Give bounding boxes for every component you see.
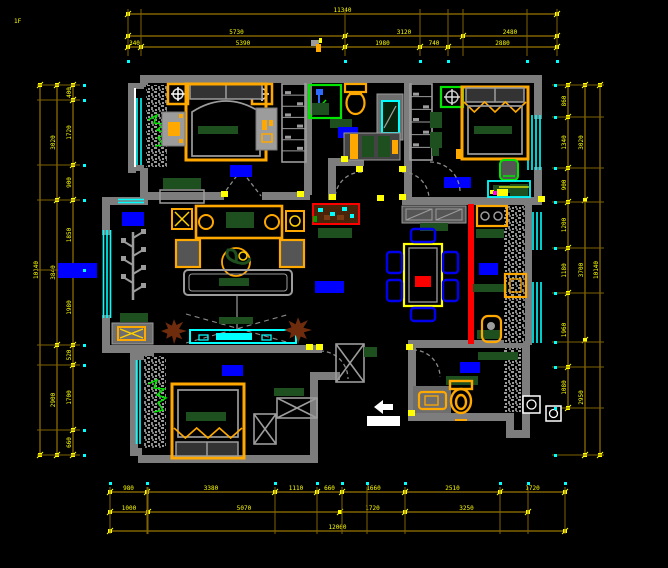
window-bedroom3-bay <box>137 360 141 444</box>
wall <box>310 375 318 463</box>
leaf <box>141 265 146 270</box>
window-kitchen-right-1 <box>533 212 541 250</box>
dimension-chain: 573031202480 <box>125 29 560 39</box>
sofa-cushion <box>226 212 254 228</box>
dim-label: 1340 <box>561 135 568 150</box>
wall-light-nub <box>221 191 228 197</box>
room-label <box>460 362 480 373</box>
dim-label: 12060 <box>328 524 346 531</box>
dim-label: 2880 <box>495 40 510 47</box>
wall <box>140 75 542 83</box>
leaf <box>141 247 146 252</box>
wardrobe-handle <box>285 113 291 116</box>
defpoint <box>83 269 86 272</box>
wardrobe-handle <box>413 143 419 146</box>
dimension-chain: 11340 <box>125 7 560 17</box>
bay-hatch-bedroom3 <box>144 356 166 448</box>
north-arrow-icon <box>374 400 393 414</box>
dimension-chain: 98033801110660166025101720 <box>107 485 568 495</box>
counter <box>476 229 504 238</box>
dim-label: 860 <box>561 95 568 106</box>
dimension-chain: 1000507017203250 <box>107 505 531 515</box>
armchair <box>280 240 304 267</box>
dim-label: 1720 <box>525 485 540 492</box>
dim-label: 3020 <box>578 135 585 150</box>
defpoint <box>554 407 557 410</box>
wardrobe-handle <box>423 105 429 108</box>
defpoint <box>554 366 557 369</box>
toilet-icon <box>345 84 366 114</box>
dim-label: 3250 <box>459 505 474 512</box>
room-label <box>479 263 498 275</box>
kitchen-divider <box>468 204 474 344</box>
defpoint <box>554 341 557 344</box>
room-label <box>444 177 471 188</box>
window-frame <box>134 88 136 167</box>
wall-light-nub <box>538 196 545 202</box>
wall-light-nub <box>399 166 406 172</box>
media-shelf <box>219 317 253 324</box>
bathroom2 <box>413 350 561 421</box>
wardrobe-handle <box>285 136 291 139</box>
defpoint <box>554 292 557 295</box>
dim-label: 3700 <box>578 262 585 277</box>
defpoint <box>83 429 86 432</box>
wall <box>102 345 322 353</box>
pillow <box>474 126 512 134</box>
vanity-cabinet <box>344 133 400 160</box>
wall-light-nub <box>377 195 384 201</box>
dim-label: 1700 <box>66 390 73 405</box>
cabinet-top <box>274 388 304 396</box>
window-kitchen-right-2 <box>533 282 541 343</box>
wall <box>506 430 528 438</box>
washing-machine-icon <box>546 406 561 421</box>
wardrobe <box>410 84 432 160</box>
wardrobe-l-shaped <box>254 398 317 444</box>
dim-label: 2900 <box>50 392 57 407</box>
defpoint <box>83 164 86 167</box>
dim-label: 5390 <box>236 40 251 47</box>
defpoint <box>83 199 86 202</box>
leaf <box>141 229 146 234</box>
door-swing-icon <box>413 350 440 377</box>
defpoint <box>447 60 450 63</box>
wall-light-nub <box>316 344 323 350</box>
dimension-chain: 340539019807402880 <box>125 40 560 50</box>
pillow <box>198 126 238 134</box>
defpoint <box>404 482 407 485</box>
bathroom1 <box>309 84 403 160</box>
defpoint <box>526 60 529 63</box>
ceiling-fan-icon <box>441 87 463 107</box>
defpoint <box>366 482 369 485</box>
wall-light-nub <box>356 166 363 172</box>
aquarium-icon <box>313 204 359 224</box>
wall <box>130 448 142 456</box>
wardrobe-handle <box>413 118 419 121</box>
door-swing-icon <box>335 172 362 199</box>
wall-light-nub <box>406 344 413 350</box>
wall <box>402 197 542 205</box>
counter <box>477 330 501 339</box>
revision-glyph <box>311 38 322 52</box>
sill-planter <box>120 313 148 322</box>
defpoint <box>564 482 567 485</box>
dim-label: 1200 <box>561 217 568 232</box>
wardrobe-outline <box>282 84 306 162</box>
shelf <box>330 119 352 128</box>
sofa-set <box>172 206 304 267</box>
dim-label: 2950 <box>578 390 585 405</box>
defpoint <box>83 344 86 347</box>
tv-icon <box>216 333 252 340</box>
defpoint <box>127 60 130 63</box>
dimension-chain: 12060 <box>107 524 568 534</box>
wall-light-nub <box>341 156 348 162</box>
wardrobe-handle <box>297 102 303 105</box>
defpoint <box>83 84 86 87</box>
closet-shelf <box>430 112 442 128</box>
dim-label: 1660 <box>366 485 381 492</box>
defpoint <box>527 482 530 485</box>
utility-magenta-mark <box>493 191 497 195</box>
dim-label: 2510 <box>445 485 460 492</box>
leaf <box>141 283 146 288</box>
armchair <box>176 240 200 267</box>
bedroom2 <box>430 87 530 197</box>
counter <box>473 284 507 292</box>
wall <box>102 315 110 353</box>
defpoint <box>556 60 559 63</box>
cad-floor-plan-canvas: { "page": {"type": "cad-apartment-floor-… <box>0 0 668 568</box>
counter <box>478 352 518 360</box>
dim-label: 1180 <box>561 263 568 278</box>
dim-label: 1960 <box>561 322 568 337</box>
dimension-chain: 10140 <box>593 82 603 458</box>
dim-label: 740 <box>429 40 440 47</box>
leaf <box>121 256 126 261</box>
nightstand-right <box>256 108 277 150</box>
dim-label: 1850 <box>66 227 73 242</box>
dim-label: 1720 <box>66 125 73 140</box>
defpoint <box>274 482 277 485</box>
dining-table-icon <box>404 244 442 306</box>
hall-cabinet <box>336 344 364 382</box>
dim-label: 1110 <box>289 485 304 492</box>
defpoint <box>83 454 86 457</box>
wall-light-nub <box>329 194 336 200</box>
door-jamb <box>456 149 462 159</box>
dim-label: 5070 <box>237 505 252 512</box>
dining-room <box>387 204 474 344</box>
dim-label: 900 <box>66 177 73 188</box>
defpoint <box>83 99 86 102</box>
dim-label: 1000 <box>122 505 137 512</box>
window-bedroom1-bay <box>137 98 141 165</box>
window-bench <box>112 323 153 344</box>
wall <box>522 345 530 438</box>
dim-label: 5730 <box>229 29 244 36</box>
plant-icon <box>161 319 187 344</box>
dimension-chain: 86013409001200118019601080 <box>561 82 571 411</box>
shelf <box>318 228 352 238</box>
side-table <box>286 211 304 231</box>
desk-chair-icon <box>500 160 518 180</box>
defpoint <box>341 482 344 485</box>
dim-label: 520 <box>66 349 73 360</box>
room-label <box>222 365 243 376</box>
wall <box>534 75 542 119</box>
wardrobe-handle <box>297 125 303 128</box>
cabinet-top <box>364 347 377 357</box>
closet-shelf <box>432 138 439 156</box>
washing-machine-icon <box>523 396 540 413</box>
double-bed <box>462 87 528 159</box>
defpoint <box>109 482 112 485</box>
dim-label: 660 <box>324 485 335 492</box>
double-bed <box>186 84 266 160</box>
dim-label: 3380 <box>204 485 219 492</box>
defpoint <box>499 482 502 485</box>
table-runner <box>415 276 431 287</box>
nightstand-left <box>162 112 185 146</box>
wall-light-nub <box>408 410 415 416</box>
wall-light-nub <box>297 191 304 197</box>
pillow <box>186 412 226 421</box>
room-label <box>230 165 252 177</box>
dim-label: 3120 <box>397 29 412 36</box>
floor-plan-svg: 1134057303120248034053901980740288098033… <box>0 0 668 568</box>
double-bed <box>172 384 244 458</box>
dim-label: 400 <box>66 87 73 98</box>
defpoint <box>554 167 557 170</box>
defpoint <box>554 201 557 204</box>
wardrobe <box>282 84 306 162</box>
room-label <box>58 263 97 278</box>
dim-label: 1080 <box>561 380 568 395</box>
window-living-left-bay <box>104 230 111 318</box>
wall-light-nub <box>399 194 406 200</box>
dim-label: 660 <box>66 437 73 448</box>
coffee-table <box>184 270 292 295</box>
wardrobe-handle <box>413 93 419 96</box>
leaf <box>121 238 126 243</box>
erased-annotation-block <box>367 416 400 426</box>
leaf <box>121 274 126 279</box>
defpoint <box>146 482 149 485</box>
dim-label: 11340 <box>333 7 351 14</box>
defpoint <box>83 364 86 367</box>
defpoint <box>316 482 319 485</box>
window-bedroom2-right <box>528 115 540 170</box>
dim-label: 1980 <box>66 300 73 315</box>
wardrobe-handle <box>285 91 291 94</box>
dim-label: 3020 <box>50 135 57 150</box>
corner-mark: 1F <box>14 18 22 25</box>
wall-light-nub <box>306 344 313 350</box>
dim-label: 340 <box>129 40 140 47</box>
defpoint <box>554 247 557 250</box>
dimension-chain: 302037002950 <box>578 82 588 458</box>
living-room <box>112 204 359 344</box>
dim-label: 10140 <box>593 261 600 279</box>
defpoint <box>344 60 347 63</box>
plant-icon <box>284 317 312 344</box>
defpoint <box>554 454 557 457</box>
dim-label: 3840 <box>50 265 57 280</box>
dim-label: 2480 <box>503 29 518 36</box>
defpoint <box>419 60 422 63</box>
dim-label: 980 <box>123 485 134 492</box>
wall <box>102 197 146 205</box>
sideboard-cabinet <box>402 206 466 231</box>
wardrobe-handle <box>423 131 429 134</box>
bench-cushion <box>163 178 201 189</box>
room-label <box>122 212 144 226</box>
branch-plant-icon <box>121 229 146 300</box>
room-label <box>315 281 344 293</box>
shower-icon <box>309 85 341 118</box>
tv-cabinet <box>190 330 296 343</box>
bedroom1 <box>148 84 306 203</box>
dim-label: 900 <box>561 179 568 190</box>
defpoint <box>554 116 557 119</box>
dining-chairs <box>387 229 458 321</box>
defpoint <box>554 84 557 87</box>
wardrobe-handle <box>297 147 303 150</box>
dim-label: 1980 <box>375 40 390 47</box>
stove-icon <box>477 206 507 226</box>
round-decor-plant <box>222 248 250 276</box>
